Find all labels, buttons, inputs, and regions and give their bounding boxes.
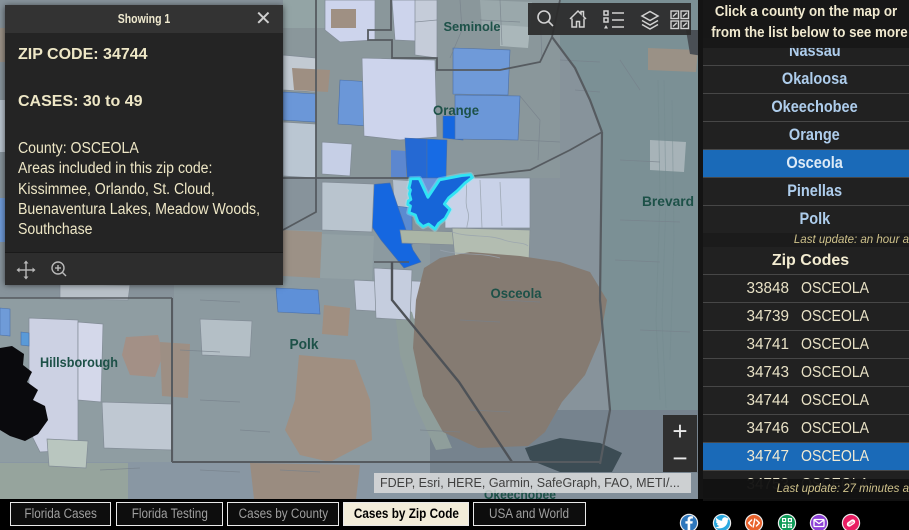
svg-text:Osceola: Osceola [491,285,542,301]
svg-text:Brevard: Brevard [642,194,694,209]
svg-text:Seminole: Seminole [444,19,501,34]
svg-text:Hillsborough: Hillsborough [40,354,118,370]
svg-text:Orange: Orange [433,102,479,118]
svg-text:Polk: Polk [290,337,320,353]
